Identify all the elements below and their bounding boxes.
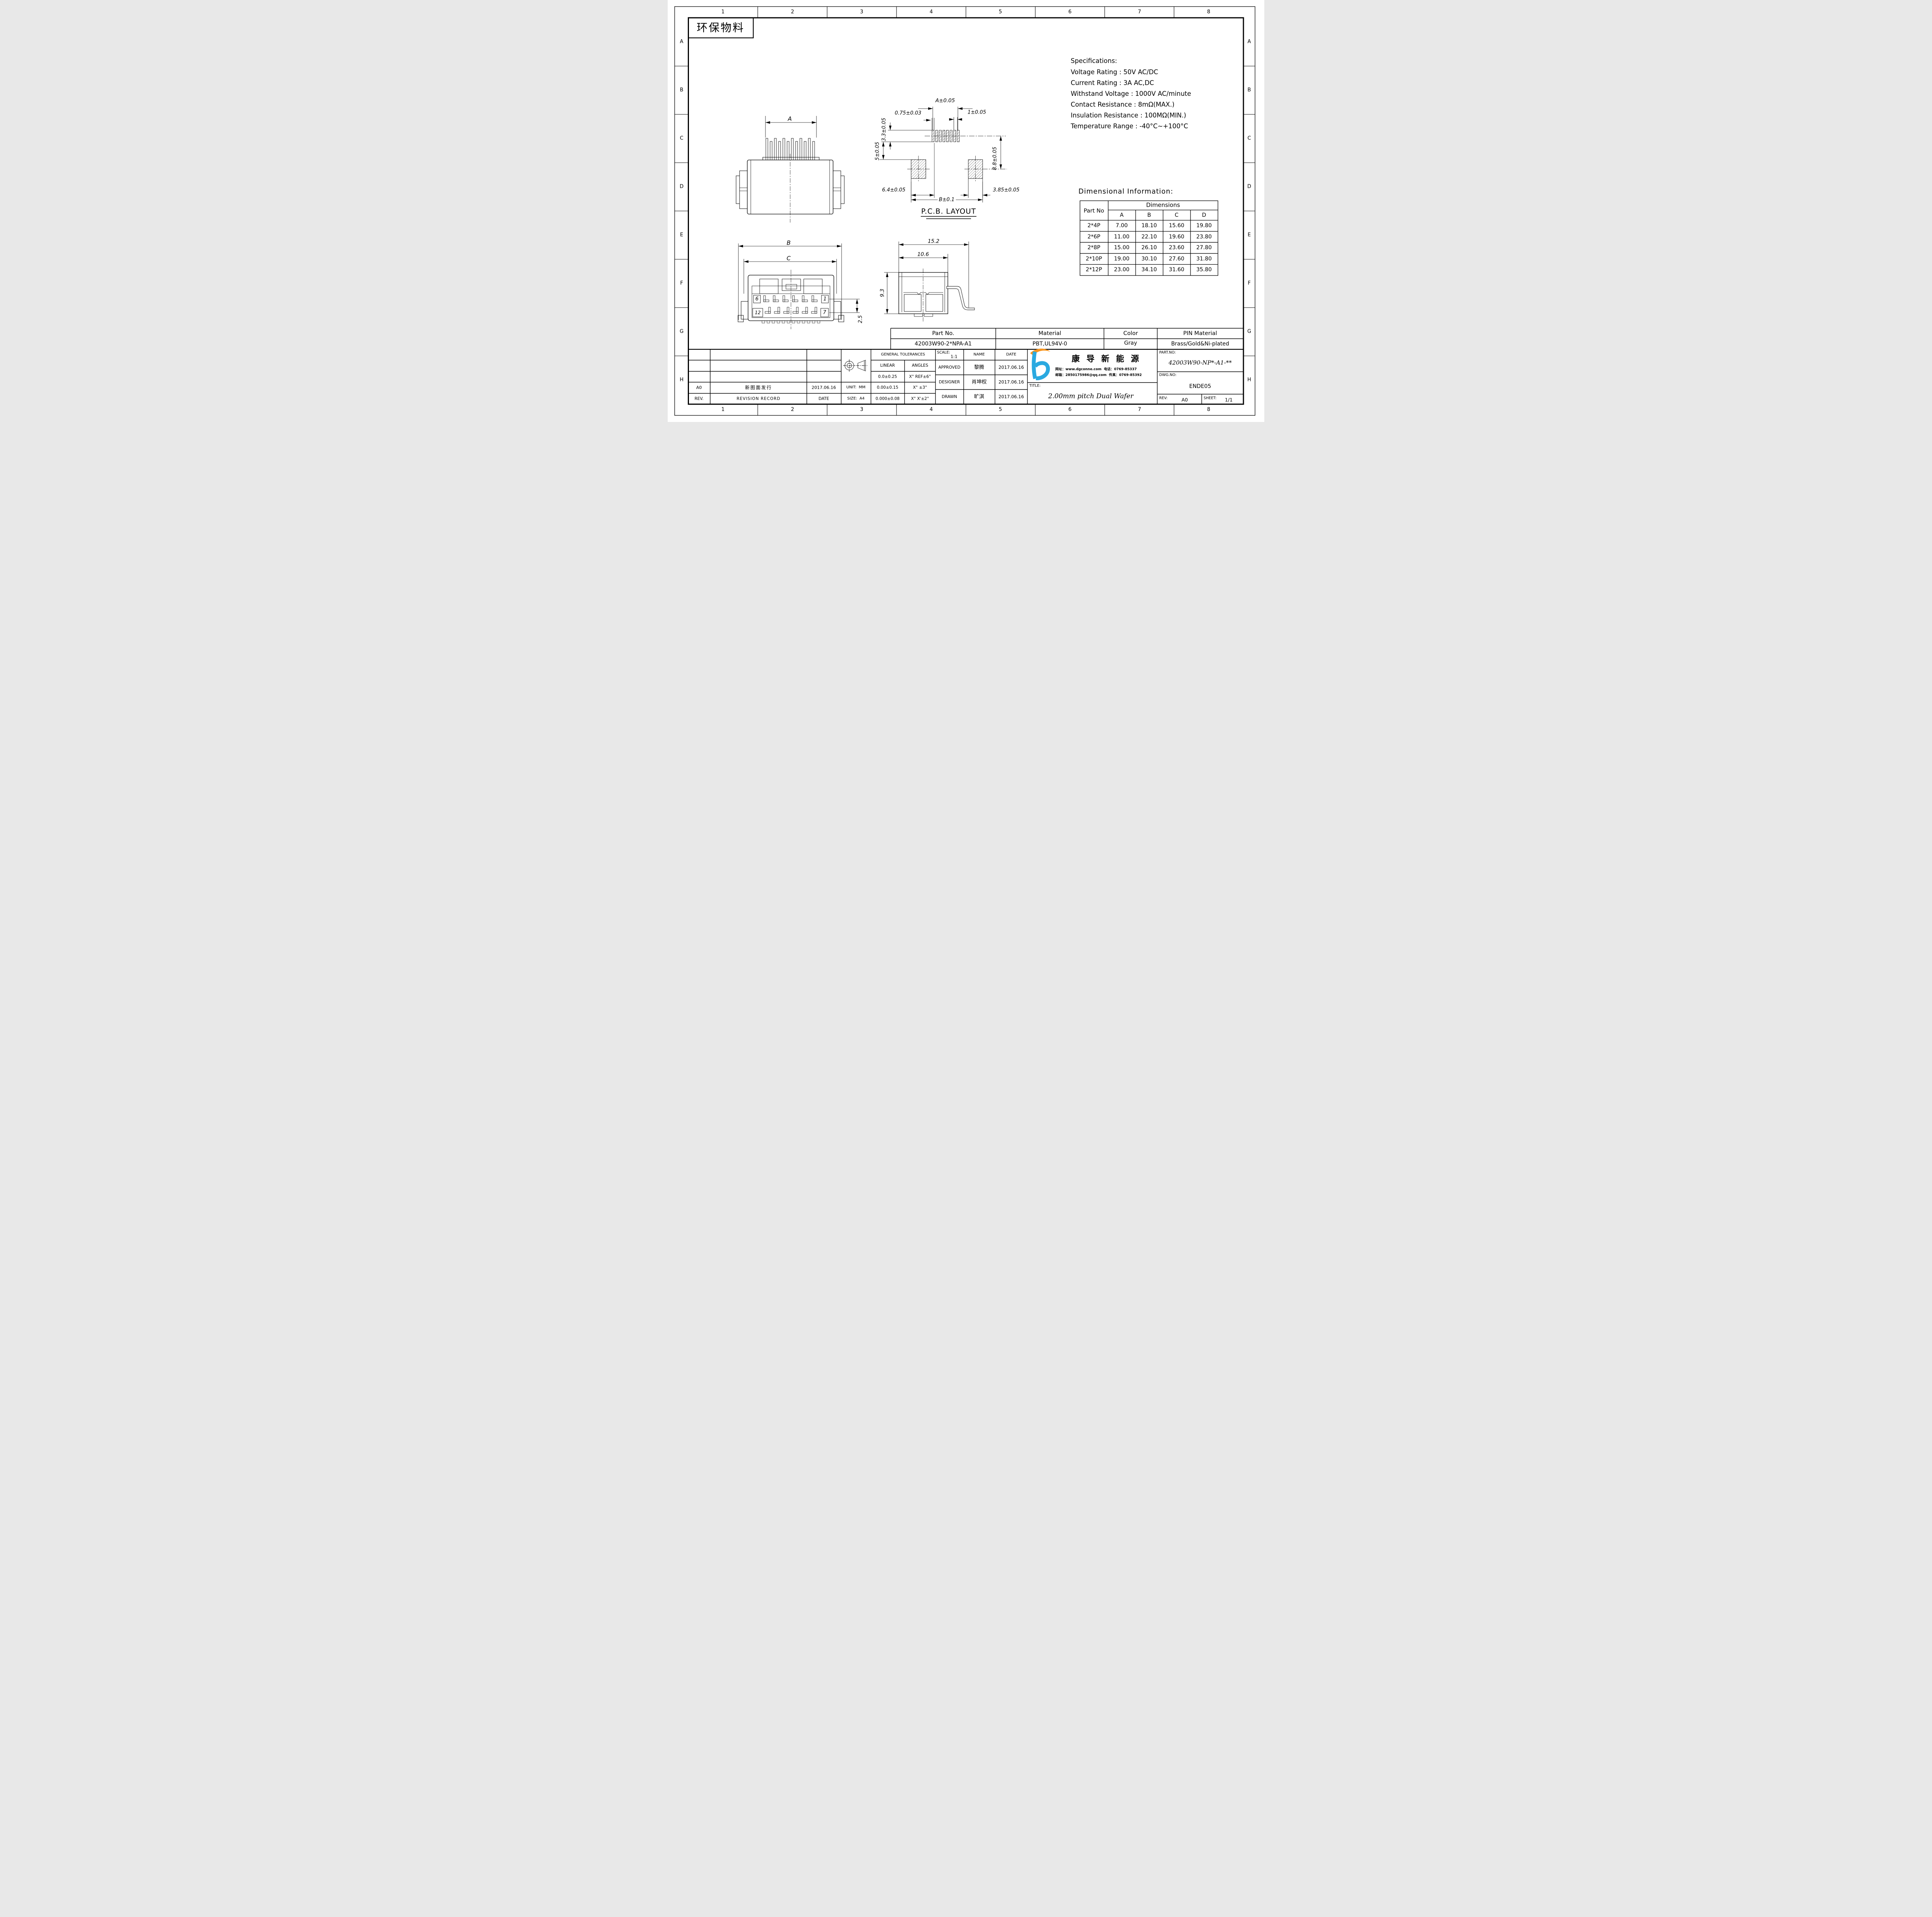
zone-row-left-a: A bbox=[680, 39, 684, 44]
approved-date: 2017.06.16 bbox=[998, 365, 1024, 370]
part-table-part-header: Part No. bbox=[932, 331, 954, 337]
part-no-label: PART.NO: bbox=[1159, 351, 1176, 355]
zone-row-right-f: F bbox=[1248, 281, 1250, 286]
part-table-material-header: Material bbox=[1039, 331, 1061, 337]
zone-row-left-e: E bbox=[680, 233, 683, 238]
dim-row-cell: 31.60 bbox=[1169, 267, 1184, 272]
size-cell: SIZE:A4 bbox=[847, 397, 864, 401]
dim-row-cell: 31.80 bbox=[1196, 256, 1212, 262]
zone-row-right-a: A bbox=[1248, 39, 1251, 44]
rev-value: A0 bbox=[1182, 398, 1188, 403]
dim-row-cell: 18.10 bbox=[1141, 223, 1157, 228]
spec-line-withstand: Withstand Voltage : 1000V AC/minute bbox=[1071, 91, 1191, 97]
size-label: SIZE: bbox=[847, 396, 857, 401]
email-value: 2850175986@qq.com bbox=[1065, 373, 1106, 377]
company-logo-icon bbox=[1030, 349, 1050, 379]
spec-line-voltage: Voltage Rating : 50V AC/DC bbox=[1071, 69, 1158, 76]
company-name: 康 导 新 能 源 bbox=[1071, 355, 1141, 363]
website-label: 网址： bbox=[1055, 367, 1065, 371]
zone-col-bottom-7: 7 bbox=[1138, 407, 1141, 412]
zone-col-bottom-1: 1 bbox=[721, 407, 724, 412]
pcb-layout-title: P.C.B. LAYOUT bbox=[921, 208, 976, 216]
drawn-name: 旷淇 bbox=[974, 395, 984, 400]
zone-row-left-f: F bbox=[680, 281, 683, 286]
website-value: www.dgconne.com bbox=[1065, 367, 1101, 371]
drawing-title: 2.00mm pitch Dual Wafer bbox=[1048, 393, 1134, 400]
tolerances-linear-header: LINEAR bbox=[880, 364, 895, 368]
dimensional-info-title: Dimensional Information: bbox=[1078, 189, 1173, 196]
phone-label: 电话： bbox=[1104, 367, 1114, 371]
dim-row-part: 2*8P bbox=[1087, 245, 1100, 250]
approved-name: 黎腾 bbox=[974, 365, 984, 370]
specifications-title: Specifications: bbox=[1071, 58, 1117, 65]
part-table-part-value: 42003W90-2*NPA-A1 bbox=[915, 341, 972, 347]
topview-dim-a: A bbox=[788, 116, 792, 122]
revision-rev-value: A0 bbox=[696, 386, 702, 390]
dim-row-cell: 27.80 bbox=[1196, 245, 1212, 250]
dim-row-cell: 19.00 bbox=[1114, 256, 1129, 262]
tol-linear-2: 0.00±0.15 bbox=[877, 386, 898, 390]
zone-row-right-d: D bbox=[1247, 184, 1251, 189]
zone-row-left-c: C bbox=[680, 136, 683, 141]
pcb-dim-a: A±0.05 bbox=[935, 98, 955, 104]
dim-table-col-b: B bbox=[1147, 213, 1151, 218]
zone-row-left-d: D bbox=[680, 184, 684, 189]
sideview-dim-inner: 10.6 bbox=[917, 252, 929, 257]
revision-date-value: 2017.06.16 bbox=[812, 386, 836, 390]
company-contact-line2: 邮箱：2850175986@qq.com传真：0769-85392 bbox=[1055, 374, 1142, 377]
dwg-no-value: ENDE05 bbox=[1189, 384, 1211, 389]
revision-date-header: DATE bbox=[818, 397, 829, 401]
rev-label: REV: bbox=[1159, 396, 1168, 400]
tol-linear-1: 0.0±0.25 bbox=[878, 375, 897, 379]
dim-table-col-c: C bbox=[1175, 213, 1179, 218]
zone-col-bottom-4: 4 bbox=[930, 407, 933, 412]
dim-row-part: 2*6P bbox=[1087, 234, 1100, 240]
part-table-color-value: Gray bbox=[1124, 340, 1137, 346]
approvals-name-header: NAME bbox=[973, 353, 985, 357]
frontview-dim-c: C bbox=[787, 256, 791, 262]
dim-table-group-header: Dimensions bbox=[1146, 202, 1180, 208]
zone-col-top-8: 8 bbox=[1207, 10, 1210, 15]
designer-date: 2017.06.16 bbox=[998, 380, 1024, 384]
phone-value: 0769-85337 bbox=[1114, 367, 1137, 371]
tol-angles-2: X° ±3° bbox=[913, 386, 927, 390]
zone-col-top-5: 5 bbox=[999, 10, 1002, 15]
dim-table-col-a: A bbox=[1120, 213, 1124, 218]
zone-col-bottom-5: 5 bbox=[999, 407, 1002, 412]
unit-label: UNIT: bbox=[846, 385, 856, 390]
drawing-sheet: 1 2 3 4 5 6 7 8 1 2 3 4 5 6 7 8 A B C D … bbox=[668, 0, 1264, 422]
dim-row-cell: 15.60 bbox=[1169, 223, 1184, 228]
eco-material-label: 环保物料 bbox=[697, 22, 745, 33]
email-label: 邮箱： bbox=[1055, 373, 1065, 377]
pin-number-1: 1 bbox=[823, 297, 827, 302]
part-table-pin-header: PIN Material bbox=[1183, 331, 1217, 337]
tol-angles-3: X° X'±2° bbox=[911, 397, 929, 401]
approvals-date-header: DATE bbox=[1006, 353, 1016, 357]
pin-number-6: 6 bbox=[755, 297, 759, 302]
pin-number-12: 12 bbox=[755, 310, 760, 315]
dim-row-cell: 34.10 bbox=[1141, 267, 1157, 272]
designer-role: DESIGNER bbox=[939, 380, 960, 384]
fax-label: 传真： bbox=[1109, 373, 1119, 377]
drawn-role: DRAWN bbox=[942, 395, 957, 399]
designer-name: 肖坤权 bbox=[971, 380, 986, 385]
dwg-no-label: DWG.NO: bbox=[1159, 373, 1177, 377]
pcb-dim-6-4: 6.4±0.05 bbox=[882, 188, 906, 193]
side-view-drawing bbox=[884, 242, 975, 321]
pcb-dim-5: 5±0.05 bbox=[875, 142, 880, 160]
zone-col-bottom-8: 8 bbox=[1207, 407, 1210, 412]
scale-label: SCALE: bbox=[937, 351, 950, 355]
dim-row-part: 2*4P bbox=[1087, 223, 1100, 228]
zone-col-top-3: 3 bbox=[860, 10, 863, 15]
zone-col-top-4: 4 bbox=[930, 10, 933, 15]
dim-row-cell: 23.80 bbox=[1196, 234, 1212, 240]
pcb-dim-b: B±0.1 bbox=[938, 197, 956, 202]
tolerances-title: GENERAL TOLERANCES bbox=[881, 353, 925, 357]
zone-col-bottom-2: 2 bbox=[791, 407, 794, 412]
unit-value: MM bbox=[859, 385, 865, 390]
zone-row-left-h: H bbox=[680, 378, 684, 383]
title-label: TITLE: bbox=[1029, 384, 1041, 388]
zone-col-top-6: 6 bbox=[1068, 10, 1071, 15]
frontview-dim-b: B bbox=[787, 240, 791, 246]
part-no-value: 42003W90-NP*-A1-** bbox=[1168, 360, 1232, 366]
zone-row-right-h: H bbox=[1247, 378, 1251, 383]
dim-row-cell: 23.60 bbox=[1169, 245, 1184, 250]
zone-col-top-7: 7 bbox=[1138, 10, 1141, 15]
zone-col-bottom-6: 6 bbox=[1068, 407, 1071, 412]
zone-col-top-2: 2 bbox=[791, 10, 794, 15]
pcb-dim-pitch: 1±0.05 bbox=[968, 110, 986, 115]
fax-value: 0769-85392 bbox=[1119, 373, 1142, 377]
dim-row-cell: 30.10 bbox=[1141, 256, 1157, 262]
zone-row-right-b: B bbox=[1248, 88, 1251, 93]
dim-table-col-d: D bbox=[1202, 213, 1206, 218]
dim-row-cell: 7.00 bbox=[1116, 223, 1128, 228]
dim-row-cell: 19.80 bbox=[1196, 223, 1212, 228]
drawn-date: 2017.06.16 bbox=[998, 395, 1024, 399]
zone-row-right-c: C bbox=[1247, 136, 1251, 141]
front-view-drawing bbox=[738, 243, 860, 329]
part-table-pin-value: Brass/Gold&Ni-plated bbox=[1171, 341, 1229, 347]
spec-line-insulation: Insulation Resistance : 100MΩ(MIN.) bbox=[1071, 112, 1186, 119]
zone-row-left-g: G bbox=[680, 329, 684, 334]
revision-record-value: 新图面发行 bbox=[745, 385, 772, 390]
zone-row-right-e: E bbox=[1248, 233, 1251, 238]
approved-role: APPROVED bbox=[938, 366, 960, 370]
frontview-dim-row-pitch: 2.5 bbox=[858, 315, 863, 323]
dim-row-cell: 35.80 bbox=[1196, 267, 1212, 272]
dim-table-part-header: Part No bbox=[1084, 208, 1104, 214]
sideview-dim-height: 9.3 bbox=[880, 289, 885, 297]
dim-row-cell: 26.10 bbox=[1141, 245, 1157, 250]
part-table-material-value: PBT,UL94V-0 bbox=[1032, 341, 1067, 347]
sheet-label: SHEET: bbox=[1204, 396, 1216, 400]
spec-line-contact: Contact Resistance : 8mΩ(MAX.) bbox=[1071, 102, 1175, 108]
dim-row-part: 2*10P bbox=[1086, 256, 1102, 262]
sideview-dim-width: 15.2 bbox=[928, 239, 939, 244]
dim-row-cell: 19.60 bbox=[1169, 234, 1184, 240]
top-view-drawing bbox=[736, 116, 844, 223]
unit-cell: UNIT:MM bbox=[846, 386, 865, 390]
sheet-value: 1/1 bbox=[1225, 398, 1233, 403]
part-table-color-header: Color bbox=[1123, 331, 1138, 337]
pcb-dim-3-3: 3.3±0.05 bbox=[882, 118, 887, 141]
scale-value: 1:1 bbox=[951, 355, 957, 359]
dim-row-cell: 23.00 bbox=[1114, 267, 1129, 272]
company-contact-line1: 网址：www.dgconne.com电话：0769-85337 bbox=[1055, 368, 1137, 371]
pcb-dim-pad-width: 0.75±0.03 bbox=[895, 111, 922, 116]
pin-number-7: 7 bbox=[823, 310, 826, 315]
zone-col-top-1: 1 bbox=[721, 10, 724, 15]
tol-linear-3: 0.000±0.08 bbox=[876, 397, 900, 401]
spec-line-temperature: Temperature Range : -40°C~+100°C bbox=[1071, 123, 1188, 130]
tolerances-angles-header: ANGLES bbox=[912, 364, 928, 368]
tol-angles-1: X° REF±6° bbox=[909, 375, 931, 379]
pcb-dim-8-8: 8.8±0.05 bbox=[993, 147, 998, 170]
revision-record-header: REVISION RECORD bbox=[736, 397, 780, 401]
third-angle-projection-icon bbox=[843, 359, 867, 372]
revision-rev-header: REV. bbox=[694, 397, 703, 401]
dim-row-cell: 27.60 bbox=[1169, 256, 1184, 262]
size-value: A4 bbox=[859, 396, 864, 401]
dim-row-cell: 22.10 bbox=[1141, 234, 1157, 240]
dim-row-cell: 15.00 bbox=[1114, 245, 1129, 250]
zone-row-right-g: G bbox=[1247, 329, 1251, 334]
dim-row-part: 2*12P bbox=[1086, 267, 1102, 272]
zone-col-bottom-3: 3 bbox=[860, 407, 863, 412]
spec-line-current: Current Rating : 3A AC,DC bbox=[1071, 80, 1154, 87]
zone-row-left-b: B bbox=[680, 88, 684, 93]
pcb-dim-3-85: 3.85±0.05 bbox=[993, 188, 1020, 193]
dim-row-cell: 11.00 bbox=[1114, 234, 1129, 240]
